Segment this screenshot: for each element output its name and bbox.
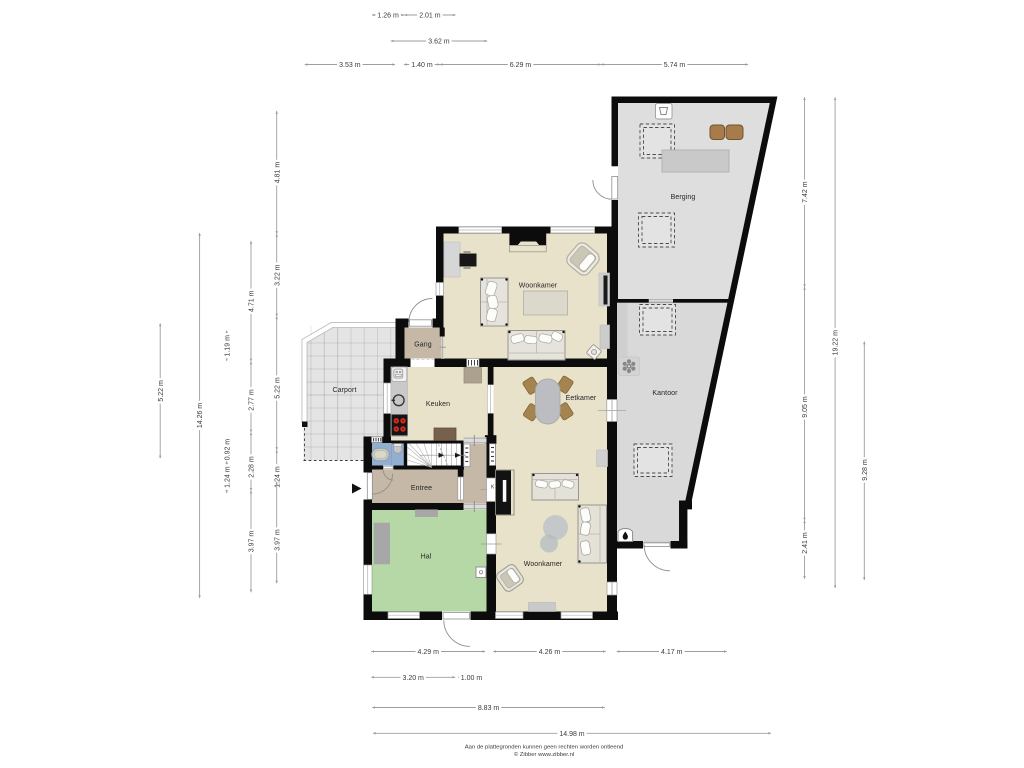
svg-text:Entree: Entree xyxy=(411,485,432,492)
svg-text:1.26 m: 1.26 m xyxy=(377,13,399,20)
svg-text:3.22 m: 3.22 m xyxy=(274,264,281,286)
svg-text:19.22 m: 19.22 m xyxy=(833,330,840,355)
svg-text:7.42 m: 7.42 m xyxy=(802,181,809,203)
svg-text:1.00 m: 1.00 m xyxy=(461,675,483,682)
svg-text:Carport: Carport xyxy=(332,387,356,394)
svg-text:4.29 m: 4.29 m xyxy=(418,649,440,656)
svg-text:4.71 m: 4.71 m xyxy=(249,290,256,312)
svg-text:6.29 m: 6.29 m xyxy=(510,62,532,69)
svg-text:3.97 m: 3.97 m xyxy=(249,531,256,553)
svg-text:1.24 m: 1.24 m xyxy=(274,466,281,488)
svg-text:3.62 m: 3.62 m xyxy=(428,39,450,46)
svg-text:4.26 m: 4.26 m xyxy=(539,649,561,656)
svg-text:9.05 m: 9.05 m xyxy=(802,396,809,418)
svg-text:5.22 m: 5.22 m xyxy=(274,377,281,399)
svg-text:2.28 m: 2.28 m xyxy=(249,456,256,478)
svg-text:9.28 m: 9.28 m xyxy=(862,459,869,481)
svg-text:© Zibber www.zibber.nl: © Zibber www.zibber.nl xyxy=(514,751,574,758)
svg-text:3.20 m: 3.20 m xyxy=(402,675,424,682)
svg-text:1.40 m: 1.40 m xyxy=(411,62,433,69)
svg-text:4.17 m: 4.17 m xyxy=(661,649,683,656)
svg-text:Berging: Berging xyxy=(671,194,696,201)
svg-text:0.92 m: 0.92 m xyxy=(224,439,231,461)
svg-text:Woonkamer: Woonkamer xyxy=(524,561,563,568)
svg-text:2.77 m: 2.77 m xyxy=(249,389,256,411)
svg-text:Gang: Gang xyxy=(414,342,432,349)
svg-text:3.97 m: 3.97 m xyxy=(274,529,281,551)
svg-text:8.83 m: 8.83 m xyxy=(478,705,500,712)
svg-text:Kantoor: Kantoor xyxy=(652,390,678,397)
svg-text:5.22 m: 5.22 m xyxy=(158,380,165,402)
svg-text:Keuken: Keuken xyxy=(426,401,450,408)
svg-text:Eetkamer: Eetkamer xyxy=(566,395,597,402)
svg-text:Woonkamer: Woonkamer xyxy=(519,283,558,290)
svg-text:2.01 m: 2.01 m xyxy=(419,13,441,20)
svg-text:1.24 m: 1.24 m xyxy=(224,466,231,488)
svg-text:14.26 m: 14.26 m xyxy=(197,403,204,428)
svg-text:1.19 m: 1.19 m xyxy=(224,335,231,357)
svg-text:2.41 m: 2.41 m xyxy=(802,532,809,554)
svg-text:Hal: Hal xyxy=(421,554,432,561)
svg-text:Aan de plattegronden kunnen ge: Aan de plattegronden kunnen geen rechten… xyxy=(465,745,624,751)
svg-text:3.53 m: 3.53 m xyxy=(339,62,361,69)
svg-text:5.74 m: 5.74 m xyxy=(664,62,686,69)
svg-text:14.98 m: 14.98 m xyxy=(559,731,584,738)
svg-text:4.81 m: 4.81 m xyxy=(274,162,281,184)
